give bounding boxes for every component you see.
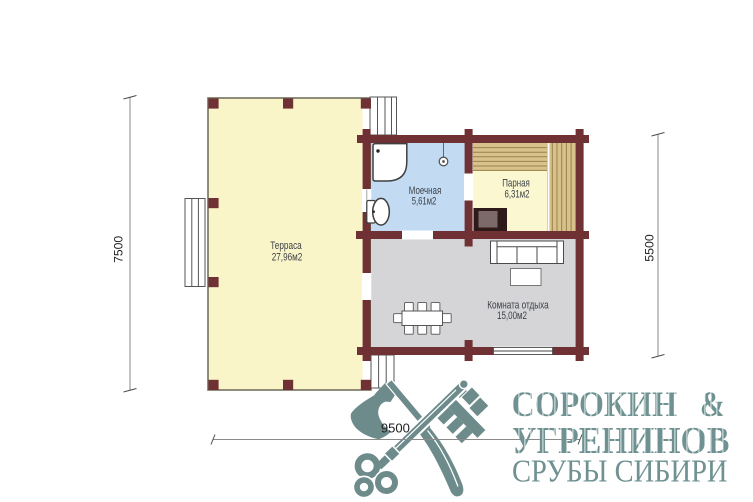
svg-text:Терраса: Терраса — [270, 240, 302, 252]
svg-text:СОРОКИН: СОРОКИН — [512, 384, 678, 424]
svg-text:7500: 7500 — [114, 236, 126, 263]
svg-text:5,61м2: 5,61м2 — [412, 195, 437, 207]
svg-text:5500: 5500 — [644, 234, 656, 262]
svg-text:&: & — [700, 384, 725, 424]
svg-text:27,96м2: 27,96м2 — [272, 252, 303, 264]
svg-text:6,31м2: 6,31м2 — [505, 188, 530, 200]
svg-text:9500: 9500 — [381, 421, 410, 436]
svg-text:СРУБЫ СИБИРИ: СРУБЫ СИБИРИ — [512, 454, 728, 489]
svg-text:15,00м2: 15,00м2 — [497, 310, 527, 322]
